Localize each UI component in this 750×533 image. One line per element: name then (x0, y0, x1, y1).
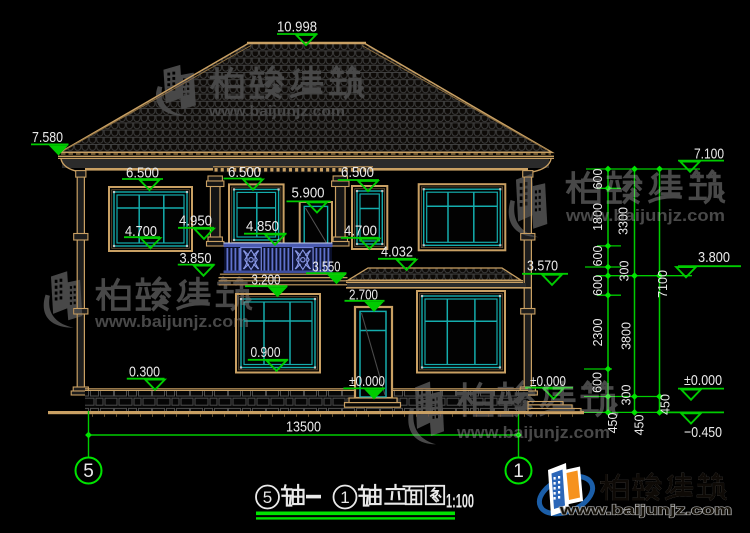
svg-text:3.200: 3.200 (252, 272, 281, 289)
svg-text:6.500: 6.500 (126, 165, 159, 182)
svg-text:5: 5 (263, 488, 272, 507)
svg-text:www.baijunjz.com: www.baijunjz.com (456, 423, 610, 442)
svg-text:4.850: 4.850 (246, 218, 279, 235)
svg-text:5.900: 5.900 (292, 185, 325, 202)
svg-text:www.baijunjz.com: www.baijunjz.com (565, 206, 725, 225)
svg-text:7100: 7100 (656, 270, 670, 298)
svg-text:7.580: 7.580 (32, 129, 63, 146)
svg-text:7.100: 7.100 (694, 146, 724, 163)
svg-text:4.700: 4.700 (125, 223, 157, 240)
svg-text:3.550: 3.550 (313, 259, 341, 276)
svg-text:3.850: 3.850 (180, 250, 212, 267)
svg-text:450: 450 (633, 415, 647, 436)
svg-text:600: 600 (591, 372, 605, 393)
svg-text:450: 450 (659, 394, 673, 415)
svg-text:5: 5 (83, 461, 94, 482)
svg-text:600: 600 (591, 246, 605, 267)
svg-text:6.500: 6.500 (341, 164, 374, 181)
svg-text:1:100: 1:100 (446, 492, 474, 513)
svg-text:300: 300 (618, 261, 632, 282)
svg-text:2300: 2300 (591, 319, 605, 347)
svg-text:3.570: 3.570 (527, 258, 558, 275)
svg-text:3.800: 3.800 (698, 249, 730, 266)
svg-text:13500: 13500 (286, 419, 321, 436)
svg-text:www.baijunjz.com: www.baijunjz.com (94, 312, 249, 331)
svg-text:4.700: 4.700 (344, 223, 377, 240)
svg-text:1: 1 (340, 488, 349, 507)
svg-text:±0.000: ±0.000 (349, 373, 385, 390)
svg-text:1: 1 (513, 461, 524, 482)
svg-text:0.900: 0.900 (251, 344, 281, 361)
svg-text:10.998: 10.998 (277, 19, 317, 36)
svg-text:www.baijunjz.com: www.baijunjz.com (559, 503, 732, 518)
svg-text:6.500: 6.500 (228, 164, 261, 181)
svg-text:600: 600 (591, 275, 605, 296)
svg-text:−0.450: −0.450 (684, 424, 722, 441)
svg-text:2.700: 2.700 (349, 287, 378, 304)
svg-text:300: 300 (620, 385, 634, 406)
svg-text:4.950: 4.950 (179, 213, 212, 230)
svg-text:3800: 3800 (620, 322, 634, 350)
svg-text:0.300: 0.300 (129, 364, 160, 381)
svg-text:4.032: 4.032 (381, 244, 413, 261)
svg-text:±0.000: ±0.000 (684, 372, 722, 389)
svg-text:www.baijunjz.com: www.baijunjz.com (208, 103, 345, 120)
